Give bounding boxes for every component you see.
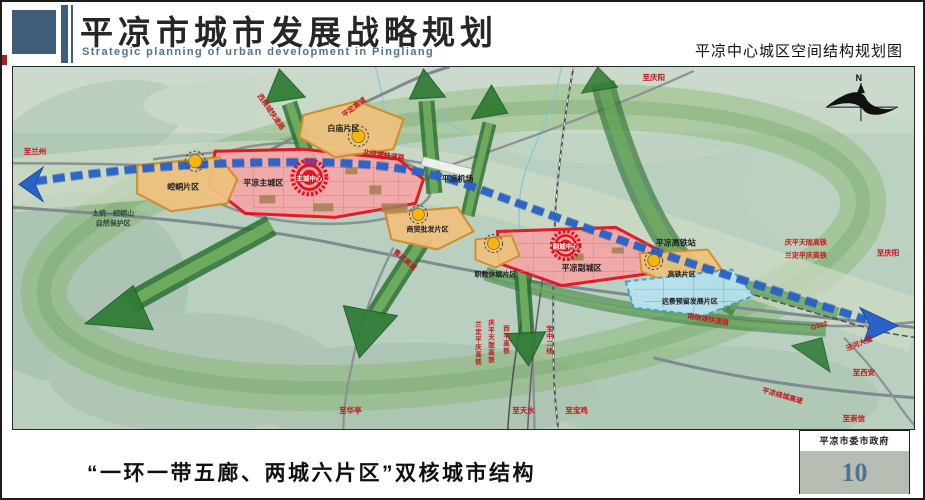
compass-n-label: N — [856, 73, 862, 83]
label-to-huating: 至华亭 — [339, 405, 362, 415]
label-zone-reserve: 远景预留发展片区 — [662, 297, 718, 306]
planning-map: 白庙片区 崆峒片区 平凉主城区 主城中心 商贸批发片区 职教休娱片区 平凉副城区… — [12, 66, 915, 430]
label-sub-core: 副城中心 — [553, 241, 579, 250]
label-ldpq-hsr: 兰定平庆高铁 — [785, 251, 827, 260]
label-zone-hsr: 高铁片区 — [668, 270, 696, 279]
label-to-tianshui: 至天水 — [512, 405, 535, 415]
logo-square — [12, 10, 56, 54]
label-to-qingyang-north: 至庆阳 — [642, 72, 664, 82]
label-main-core: 主城中心 — [296, 173, 322, 182]
label-zone-sub-city: 平凉副城区 — [562, 263, 602, 273]
page-number: 10 — [800, 451, 909, 494]
label-xiping-rail-vertical: 西平高铁 — [501, 325, 508, 355]
label-nature-reserve-line2: 自然保护区 — [96, 218, 131, 227]
planning-slide: 平凉市城市发展战略规划 Strategic planning of urban … — [0, 0, 925, 500]
label-to-baoji: 至宝鸡 — [565, 405, 588, 415]
label-to-chongxin: 至崇信 — [843, 413, 866, 423]
label-to-lanzhou: 至兰州 — [24, 146, 46, 156]
label-nature-reserve-line1: 太统—崆峒山 — [92, 208, 134, 217]
label-zone-kongtong: 崆峒片区 — [167, 181, 199, 191]
label-qptl-hsr-vertical: 庆平天陇高铁 — [486, 319, 493, 364]
organization-label: 平凉市委市政府 — [800, 431, 909, 451]
label-zone-baimiao: 白庙片区 — [327, 123, 359, 133]
label-airport: 平凉机场 — [442, 173, 474, 183]
map-subtitle: 平凉中心城区空间结构规划图 — [695, 40, 903, 61]
label-baozhong-rail-vertical: 宝中二线 — [544, 325, 551, 355]
logo-red-accent — [2, 55, 7, 65]
label-ldpq-hsr-vertical: 兰定平庆高铁 — [473, 321, 480, 366]
structure-caption: “一环一带五廊、两城六片区”双核城市结构 — [87, 457, 536, 487]
logo-bar — [61, 5, 68, 63]
page-number-box: 平凉市委市政府 10 — [799, 430, 910, 494]
label-zone-main-city: 平凉主城区 — [243, 177, 283, 187]
label-to-xian: 至西安 — [853, 367, 876, 377]
map-canvas: 白庙片区 崆峒片区 平凉主城区 主城中心 商贸批发片区 职教休娱片区 平凉副城区… — [13, 67, 914, 429]
label-zone-trade: 商贸批发片区 — [406, 224, 448, 233]
label-hsr-station: 平凉高铁站 — [656, 237, 696, 247]
logo-bar-thin — [71, 5, 73, 63]
page-title-english: Strategic planning of urban development … — [82, 46, 434, 58]
label-zone-vocational: 职教休娱片区 — [475, 270, 517, 279]
label-to-qingyang-east: 至庆阳 — [877, 248, 899, 258]
label-qptl-hsr: 庆平天陇高铁 — [784, 237, 827, 246]
